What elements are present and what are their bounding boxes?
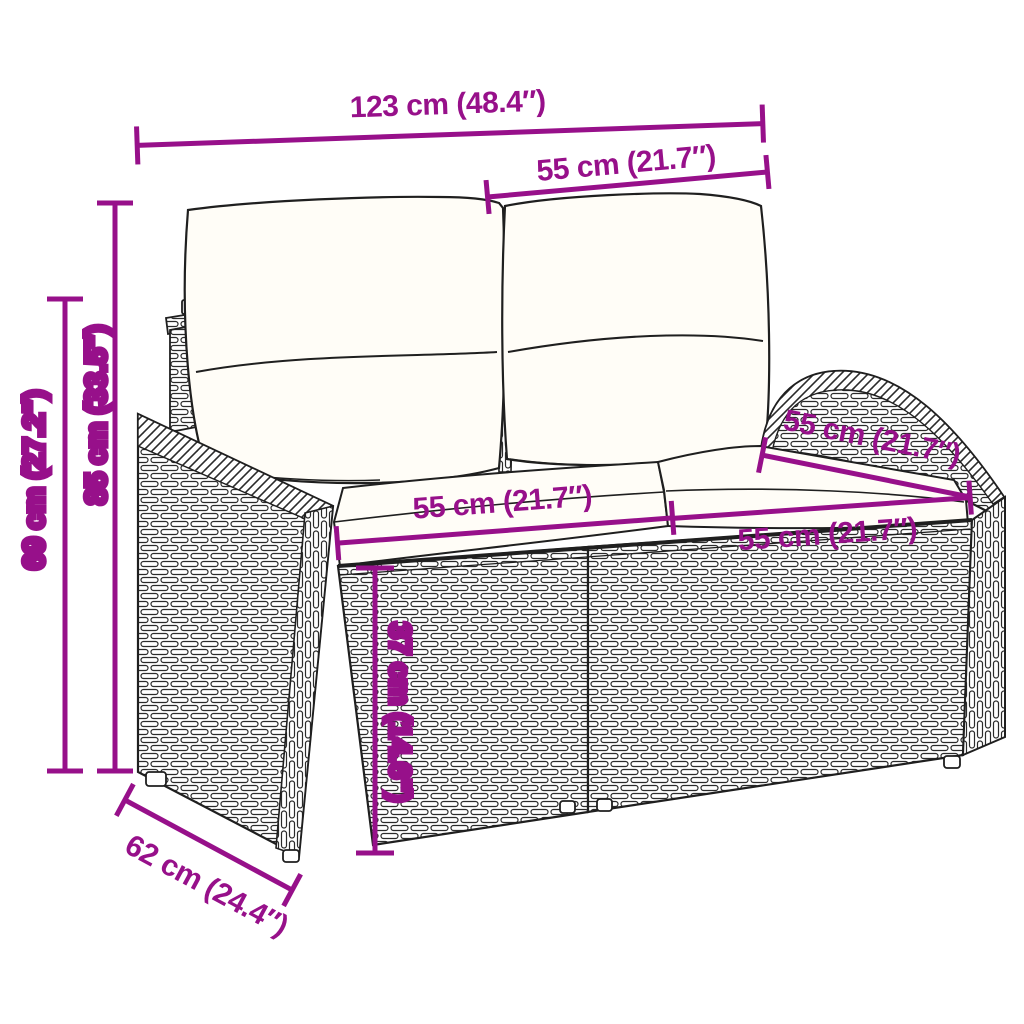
dimension-tick	[116, 784, 133, 816]
dimension-tick	[336, 526, 339, 560]
dimension-tick	[137, 126, 138, 164]
dim-overall-width-label: 123 cm (48.4″)	[349, 85, 546, 125]
dimension-line	[137, 124, 763, 146]
dimension-tick	[486, 180, 489, 214]
sofa-foot	[283, 850, 299, 862]
dim-overall-height: 85 cm (33.5″)	[80, 203, 133, 771]
back-pillow-right	[502, 193, 769, 465]
pillow-outline	[185, 197, 505, 483]
pillow-outline	[502, 193, 769, 465]
sofa-foot	[597, 799, 612, 811]
dimension-tick	[762, 105, 763, 143]
back-pillow-left	[185, 197, 505, 483]
product-dimension-diagram: 123 cm (48.4″) 55 cm (21.7″) 85 cm (33.5…	[0, 0, 1024, 1024]
sofa-foot	[560, 801, 575, 813]
sofa-foot	[146, 772, 166, 786]
dim-armrest-height-label: 69 cm (27.2″)	[18, 390, 51, 570]
front-panel-right	[588, 520, 972, 812]
dim-seat-height-label: 37 cm (14.6″)	[383, 622, 416, 802]
sofa-dimension-drawing: 123 cm (48.4″) 55 cm (21.7″) 85 cm (33.5…	[0, 0, 1024, 1024]
dim-overall-height-label: 85 cm (33.5″)	[80, 325, 113, 505]
dimension-tick	[284, 874, 301, 906]
sofa-foot	[944, 756, 960, 768]
dimension-tick	[766, 155, 769, 189]
dim-armrest-height: 69 cm (27.2″)	[18, 299, 83, 771]
